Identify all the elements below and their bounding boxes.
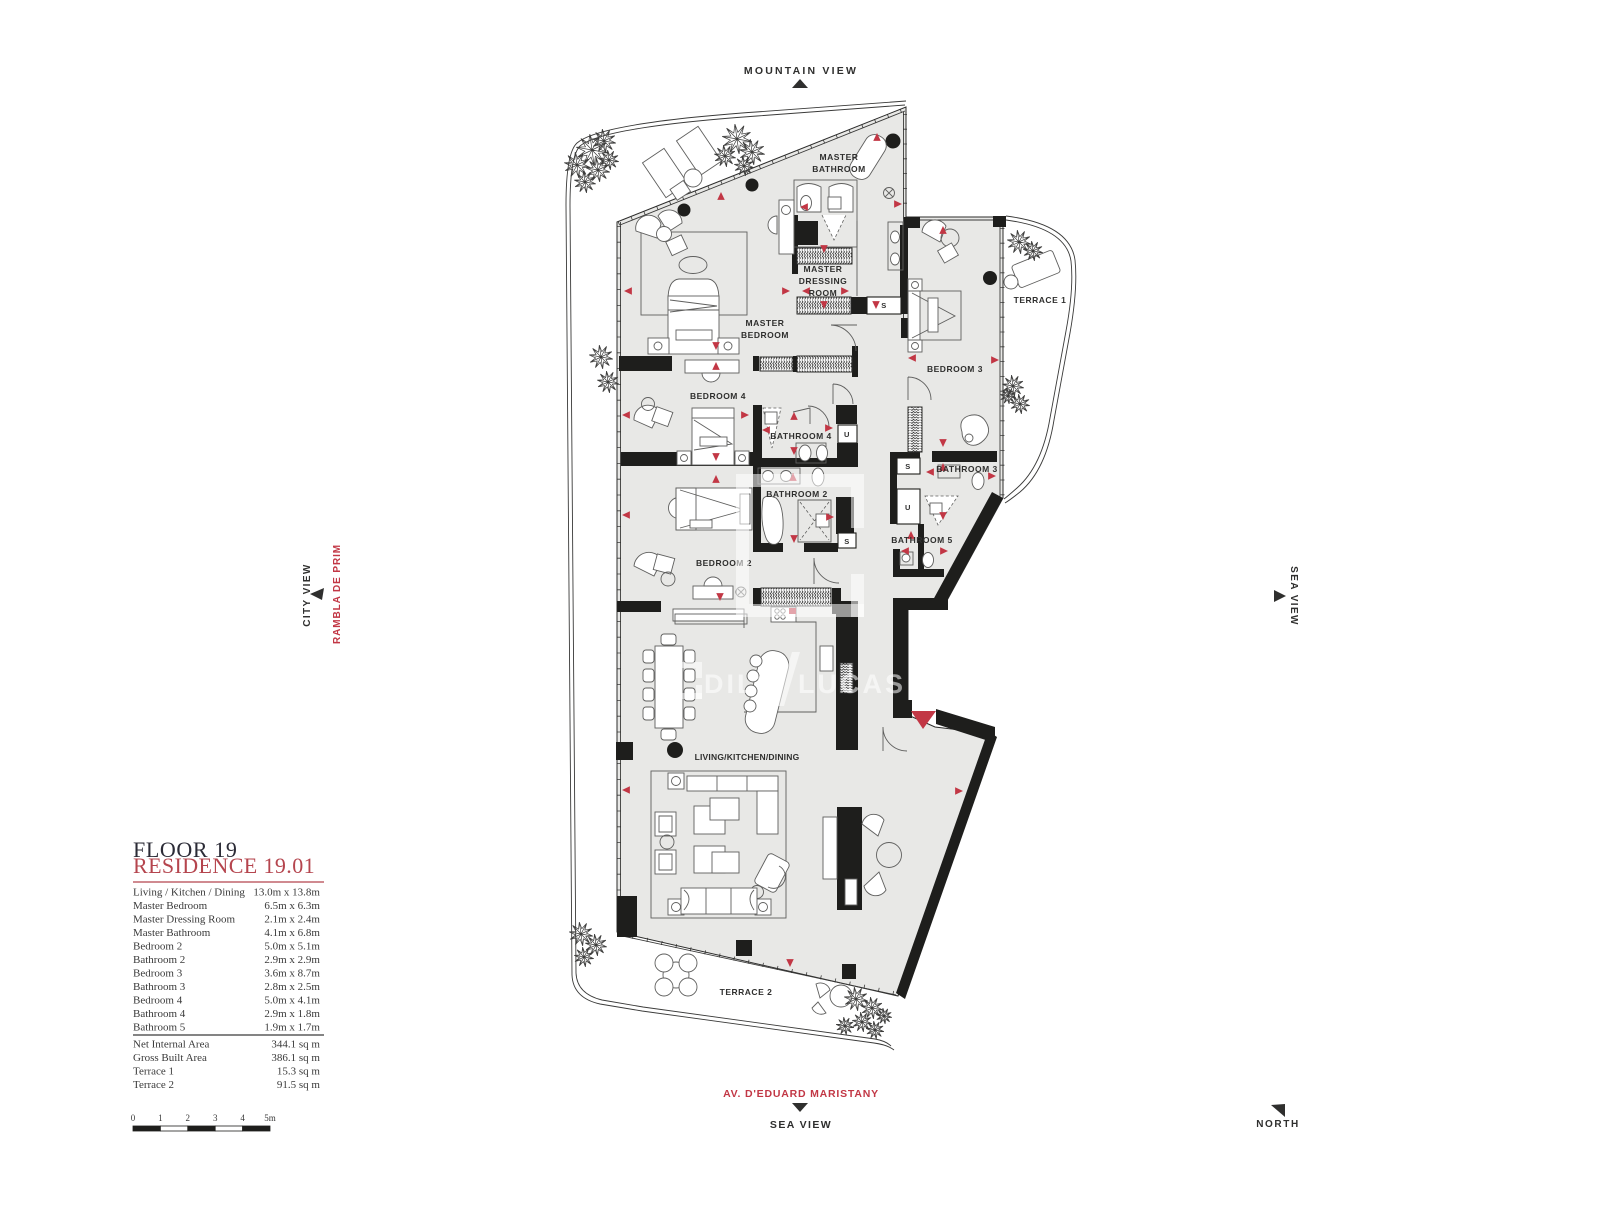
svg-text:BEDROOM: BEDROOM: [741, 330, 789, 340]
svg-text:LUCAS: LUCAS: [798, 669, 906, 699]
svg-text:Bathroom 3: Bathroom 3: [133, 981, 186, 993]
svg-text:Master Bedroom: Master Bedroom: [133, 900, 208, 912]
svg-text:6.5m x 6.3m: 6.5m x 6.3m: [264, 900, 320, 912]
svg-text:4.1m x 6.8m: 4.1m x 6.8m: [264, 927, 320, 939]
svg-text:Living / Kitchen / Dining: Living / Kitchen / Dining: [133, 887, 245, 899]
svg-text:91.5 sq m: 91.5 sq m: [277, 1079, 321, 1091]
svg-text:344.1 sq m: 344.1 sq m: [271, 1039, 320, 1051]
svg-text:LIVING/KITCHEN/DINING: LIVING/KITCHEN/DINING: [695, 752, 800, 762]
svg-text:3.6m x 8.7m: 3.6m x 8.7m: [264, 968, 320, 980]
svg-text:2.9m x 2.9m: 2.9m x 2.9m: [264, 954, 320, 966]
svg-text:DILS: DILS: [704, 669, 778, 699]
svg-text:3: 3: [213, 1113, 218, 1123]
svg-text:Bedroom 4: Bedroom 4: [133, 995, 183, 1007]
svg-text:AV. D'EDUARD MARISTANY: AV. D'EDUARD MARISTANY: [723, 1088, 879, 1100]
svg-text:2: 2: [186, 1113, 191, 1123]
svg-text:2.8m x 2.5m: 2.8m x 2.5m: [264, 981, 320, 993]
svg-text:MASTER: MASTER: [804, 264, 843, 274]
svg-text:BEDROOM 3: BEDROOM 3: [927, 364, 983, 374]
svg-text:15.3 sq m: 15.3 sq m: [277, 1066, 321, 1078]
svg-text:TERRACE 2: TERRACE 2: [720, 987, 773, 997]
svg-text:2.9m x 1.8m: 2.9m x 1.8m: [264, 1008, 320, 1020]
svg-text:BATHROOM 3: BATHROOM 3: [936, 464, 998, 474]
svg-text:Gross Built Area: Gross Built Area: [133, 1052, 207, 1064]
svg-text:386.1 sq m: 386.1 sq m: [271, 1052, 320, 1064]
svg-text:U: U: [905, 503, 911, 512]
svg-text:SEA VIEW: SEA VIEW: [770, 1119, 832, 1131]
svg-text:MASTER: MASTER: [746, 318, 785, 328]
svg-text:BATHROOM 4: BATHROOM 4: [770, 431, 832, 441]
svg-text:Master Bathroom: Master Bathroom: [133, 927, 211, 939]
svg-text:BATHROOM 2: BATHROOM 2: [766, 489, 828, 499]
svg-text:S: S: [881, 301, 887, 310]
svg-text:Bathroom 2: Bathroom 2: [133, 954, 185, 966]
svg-text:5m: 5m: [264, 1113, 276, 1123]
svg-text:Bathroom 4: Bathroom 4: [133, 1008, 186, 1020]
svg-text:5.0m x 4.1m: 5.0m x 4.1m: [264, 995, 320, 1007]
svg-text:U: U: [844, 430, 850, 439]
svg-text:RAMBLA DE PRIM: RAMBLA DE PRIM: [332, 544, 343, 644]
svg-text:S: S: [844, 537, 850, 546]
svg-text:Net Internal Area: Net Internal Area: [133, 1039, 209, 1051]
svg-text:TERRACE 1: TERRACE 1: [1014, 295, 1067, 305]
svg-text:5.0m x 5.1m: 5.0m x 5.1m: [264, 941, 320, 953]
svg-text:NORTH: NORTH: [1256, 1119, 1300, 1130]
svg-text:MASTER: MASTER: [820, 152, 859, 162]
svg-text:Terrace 2: Terrace 2: [133, 1079, 174, 1091]
svg-text:RESIDENCE 19.01: RESIDENCE 19.01: [133, 853, 315, 878]
svg-text:Master Dressing Room: Master Dressing Room: [133, 914, 235, 926]
svg-text:BATHROOM 5: BATHROOM 5: [891, 535, 953, 545]
svg-text:Bedroom 2: Bedroom 2: [133, 941, 182, 953]
svg-text:BATHROOM: BATHROOM: [812, 164, 865, 174]
svg-text:CITY VIEW: CITY VIEW: [302, 563, 313, 627]
svg-text:BEDROOM 4: BEDROOM 4: [690, 391, 746, 401]
svg-text:2.1m x 2.4m: 2.1m x 2.4m: [264, 914, 320, 926]
svg-text:S: S: [905, 462, 911, 471]
svg-text:1.9m x 1.7m: 1.9m x 1.7m: [264, 1022, 320, 1034]
svg-text:Bathroom 5: Bathroom 5: [133, 1022, 186, 1034]
svg-text:MOUNTAIN VIEW: MOUNTAIN VIEW: [744, 65, 858, 77]
svg-text:13.0m x 13.8m: 13.0m x 13.8m: [253, 887, 320, 899]
svg-text:4: 4: [240, 1113, 245, 1123]
svg-text:ROOM: ROOM: [809, 288, 837, 298]
svg-text:1: 1: [158, 1113, 163, 1123]
svg-text:DRESSING: DRESSING: [799, 276, 847, 286]
svg-text:Terrace 1: Terrace 1: [133, 1066, 174, 1078]
svg-text:0: 0: [131, 1113, 136, 1123]
svg-text:SEA VIEW: SEA VIEW: [1288, 566, 1299, 626]
svg-text:Bedroom 3: Bedroom 3: [133, 968, 183, 980]
